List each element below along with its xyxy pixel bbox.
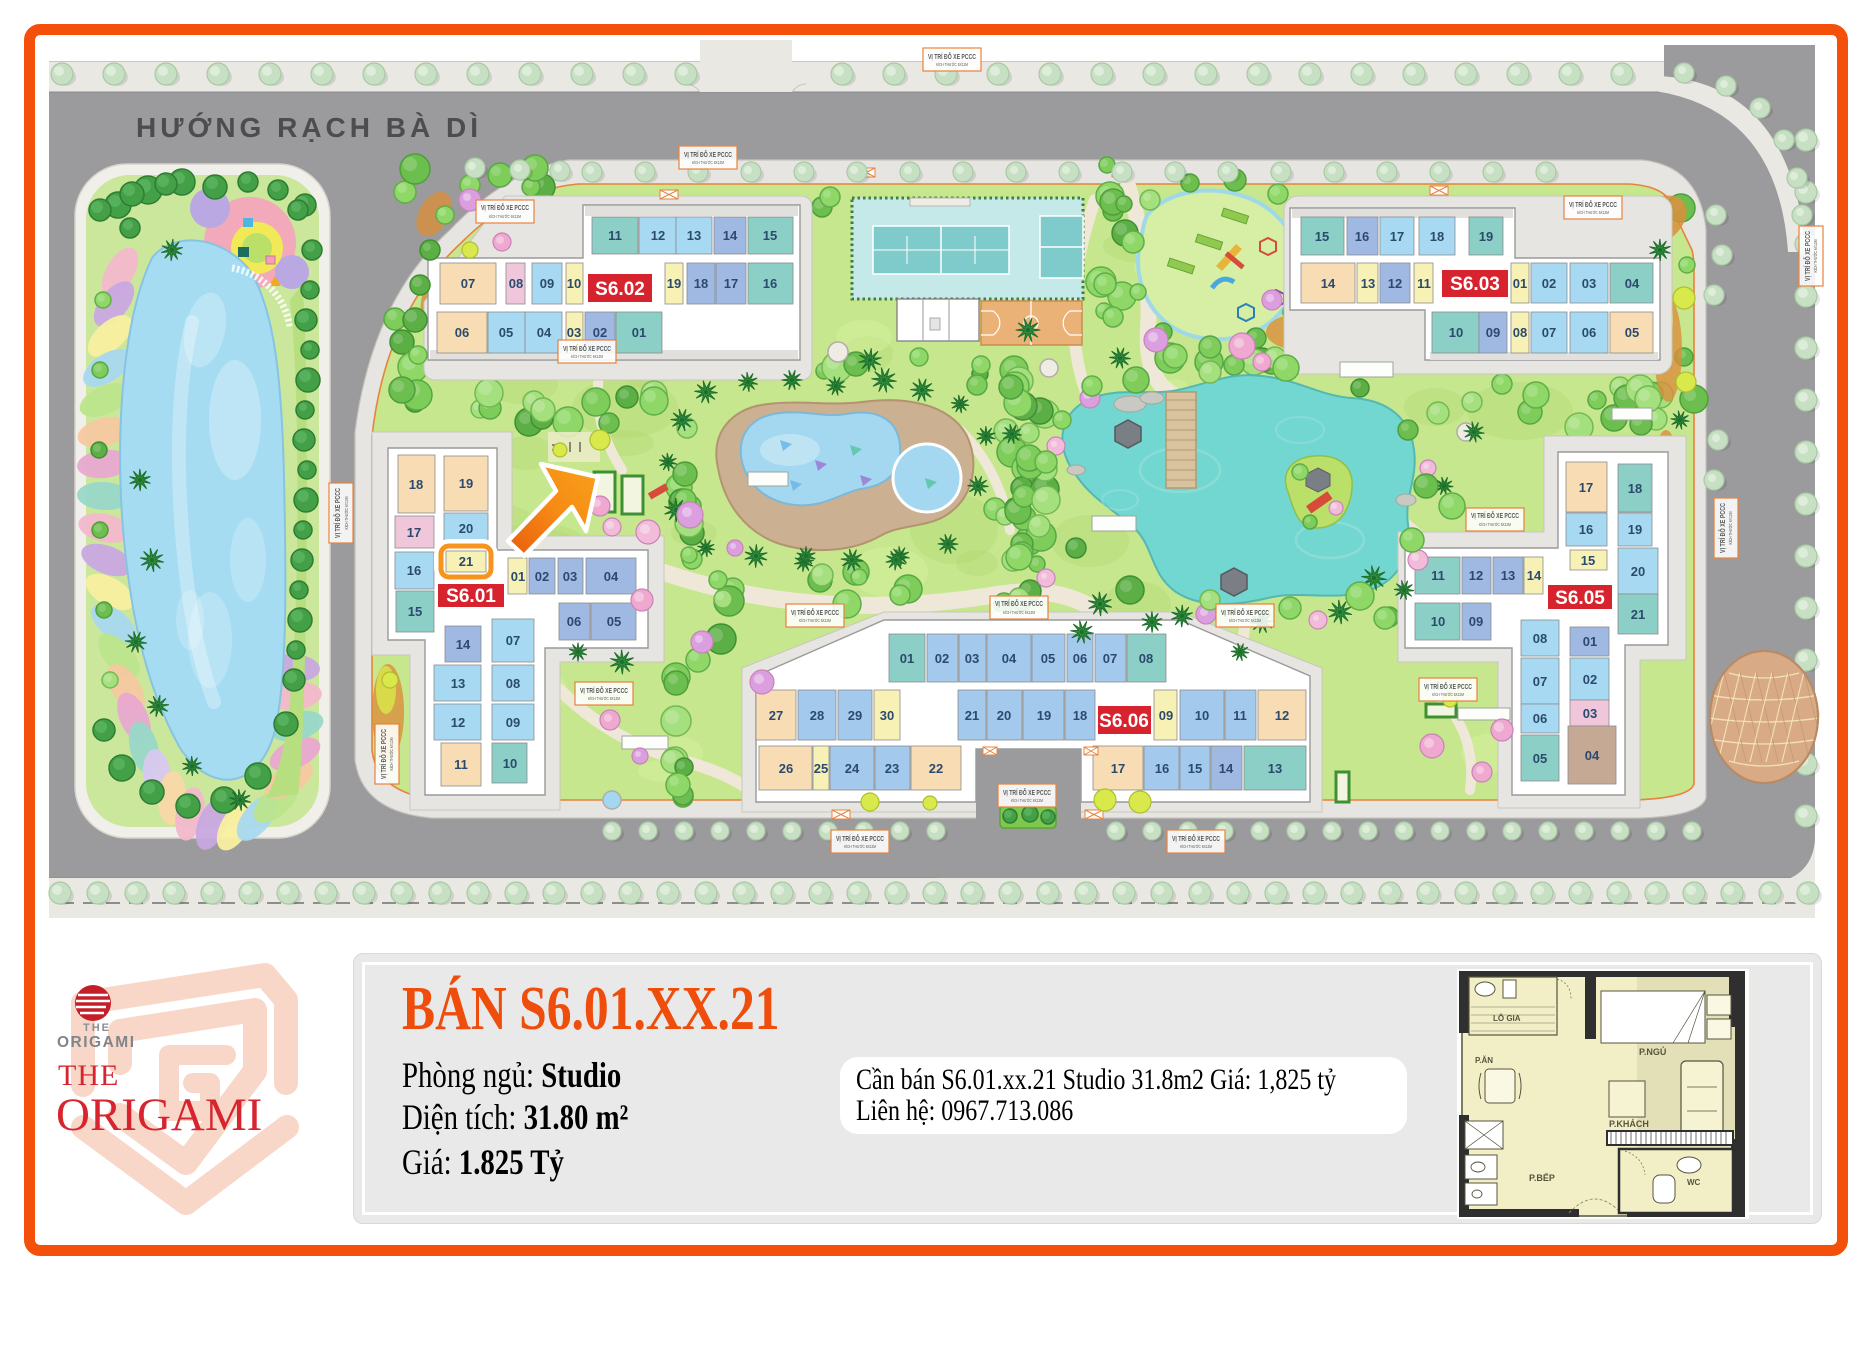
svg-text:14: 14 [1321, 276, 1336, 291]
svg-text:08: 08 [509, 276, 523, 291]
svg-text:VỊ TRÍ ĐỖ XE PCCC: VỊ TRÍ ĐỖ XE PCCC [379, 729, 388, 779]
svg-text:22: 22 [929, 761, 943, 776]
svg-text:VỊ TRÍ ĐỖ XE PCCC: VỊ TRÍ ĐỖ XE PCCC [563, 344, 611, 353]
svg-text:02: 02 [935, 651, 949, 666]
svg-text:KÍCH THƯỚC 6X12M: KÍCH THƯỚC 6X12M [844, 844, 876, 849]
svg-text:02: 02 [1583, 672, 1597, 687]
svg-text:VỊ TRÍ ĐỖ XE PCCC: VỊ TRÍ ĐỖ XE PCCC [928, 52, 976, 61]
svg-text:10: 10 [1431, 614, 1445, 629]
svg-text:01: 01 [511, 569, 525, 584]
svg-text:03: 03 [563, 569, 577, 584]
svg-text:17: 17 [724, 276, 738, 291]
svg-text:KÍCH THƯỚC 6X12M: KÍCH THƯỚC 6X12M [1229, 618, 1261, 623]
svg-text:06: 06 [455, 325, 469, 340]
svg-text:10: 10 [1449, 325, 1463, 340]
svg-text:KÍCH THƯỚC 6X12M: KÍCH THƯỚC 6X12M [344, 496, 349, 529]
svg-text:12: 12 [1388, 276, 1402, 291]
svg-text:16: 16 [763, 276, 777, 291]
svg-text:S6.05: S6.05 [1555, 588, 1605, 609]
svg-text:KÍCH THƯỚC 6X12M: KÍCH THƯỚC 6X12M [1180, 844, 1212, 849]
svg-text:19: 19 [1037, 708, 1051, 723]
svg-text:KÍCH THƯỚC 6X12M: KÍCH THƯỚC 6X12M [1479, 522, 1511, 527]
svg-text:14: 14 [456, 637, 471, 652]
svg-text:18: 18 [1430, 229, 1444, 244]
svg-text:04: 04 [1585, 748, 1600, 763]
svg-text:VỊ TRÍ ĐỖ XE PCCC: VỊ TRÍ ĐỖ XE PCCC [1803, 231, 1812, 281]
svg-text:10: 10 [503, 756, 517, 771]
svg-text:01: 01 [1583, 634, 1597, 649]
svg-text:P.BẾP: P.BẾP [1529, 1173, 1555, 1183]
svg-text:03: 03 [567, 325, 581, 340]
svg-text:17: 17 [1111, 761, 1125, 776]
svg-text:25: 25 [814, 761, 828, 776]
svg-text:03: 03 [965, 651, 979, 666]
svg-text:06: 06 [1533, 711, 1547, 726]
svg-text:KÍCH THƯỚC 6X12M: KÍCH THƯỚC 6X12M [489, 214, 521, 219]
svg-text:KÍCH THƯỚC 6X12M: KÍCH THƯỚC 6X12M [389, 737, 394, 770]
svg-text:09: 09 [540, 276, 554, 291]
svg-text:19: 19 [1479, 229, 1493, 244]
svg-text:14: 14 [723, 228, 738, 243]
svg-text:14: 14 [1219, 761, 1234, 776]
svg-text:VỊ TRÍ ĐỖ XE PCCC: VỊ TRÍ ĐỖ XE PCCC [791, 608, 839, 617]
svg-text:11: 11 [1417, 276, 1431, 291]
svg-text:03: 03 [1583, 706, 1597, 721]
svg-text:14: 14 [1527, 568, 1542, 583]
svg-text:VỊ TRÍ ĐỖ XE PCCC: VỊ TRÍ ĐỖ XE PCCC [995, 599, 1043, 608]
svg-text:15: 15 [408, 604, 422, 619]
svg-text:06: 06 [1073, 651, 1087, 666]
svg-text:11: 11 [1431, 568, 1445, 583]
svg-text:08: 08 [1533, 631, 1547, 646]
svg-text:02: 02 [535, 569, 549, 584]
svg-text:05: 05 [1041, 651, 1055, 666]
svg-text:P.KHÁCH: P.KHÁCH [1609, 1119, 1649, 1129]
svg-text:VỊ TRÍ ĐỖ XE PCCC: VỊ TRÍ ĐỖ XE PCCC [333, 488, 342, 538]
svg-text:27: 27 [769, 708, 783, 723]
svg-text:KÍCH THƯỚC 6X12M: KÍCH THƯỚC 6X12M [1003, 610, 1035, 615]
svg-text:HƯỚNG RẠCH BÀ DÌ: HƯỚNG RẠCH BÀ DÌ [136, 112, 482, 143]
svg-text:VỊ TRÍ ĐỖ XE PCCC: VỊ TRÍ ĐỖ XE PCCC [1172, 834, 1220, 843]
svg-text:06: 06 [567, 614, 581, 629]
svg-text:11: 11 [454, 757, 468, 772]
svg-text:19: 19 [459, 476, 473, 491]
svg-text:13: 13 [687, 228, 701, 243]
svg-text:16: 16 [1155, 761, 1169, 776]
svg-text:P.ĂN: P.ĂN [1475, 1056, 1493, 1065]
svg-text:30: 30 [880, 708, 894, 723]
svg-text:S6.03: S6.03 [1450, 274, 1500, 295]
svg-text:VỊ TRÍ ĐỖ XE PCCC: VỊ TRÍ ĐỖ XE PCCC [1471, 511, 1519, 520]
svg-text:S6.06: S6.06 [1099, 711, 1149, 732]
svg-text:18: 18 [409, 477, 423, 492]
svg-text:07: 07 [461, 276, 475, 291]
svg-text:08: 08 [1513, 325, 1527, 340]
svg-text:20: 20 [997, 708, 1011, 723]
svg-text:KÍCH THƯỚC 6X12M: KÍCH THƯỚC 6X12M [571, 354, 603, 359]
svg-text:07: 07 [506, 633, 520, 648]
svg-text:18: 18 [1628, 481, 1642, 496]
svg-text:09: 09 [1486, 325, 1500, 340]
svg-text:21: 21 [459, 554, 473, 569]
svg-text:LÔ GIA: LÔ GIA [1493, 1014, 1521, 1023]
svg-text:07: 07 [1103, 651, 1117, 666]
svg-text:16: 16 [1355, 229, 1369, 244]
svg-text:15: 15 [1188, 761, 1202, 776]
svg-text:VỊ TRÍ ĐỖ XE PCCC: VỊ TRÍ ĐỖ XE PCCC [1569, 200, 1617, 209]
svg-text:03: 03 [1582, 276, 1596, 291]
svg-text:16: 16 [407, 563, 421, 578]
svg-text:KÍCH THƯỚC 6X12M: KÍCH THƯỚC 6X12M [588, 696, 620, 701]
svg-text:09: 09 [506, 715, 520, 730]
svg-text:23: 23 [885, 761, 899, 776]
svg-text:08: 08 [1139, 651, 1153, 666]
svg-text:21: 21 [965, 708, 979, 723]
svg-text:04: 04 [1002, 651, 1017, 666]
svg-text:01: 01 [900, 651, 914, 666]
svg-text:02: 02 [593, 325, 607, 340]
svg-text:13: 13 [451, 676, 465, 691]
svg-text:VỊ TRÍ ĐỖ XE PCCC: VỊ TRÍ ĐỖ XE PCCC [1003, 788, 1051, 797]
svg-text:06: 06 [1582, 325, 1596, 340]
svg-text:15: 15 [763, 228, 777, 243]
svg-text:S6.02: S6.02 [595, 279, 645, 300]
svg-text:11: 11 [608, 228, 622, 243]
svg-text:20: 20 [1631, 564, 1645, 579]
svg-text:15: 15 [1581, 553, 1595, 568]
svg-text:24: 24 [845, 761, 860, 776]
svg-text:28: 28 [810, 708, 824, 723]
svg-text:09: 09 [1469, 614, 1483, 629]
svg-text:VỊ TRÍ ĐỖ XE PCCC: VỊ TRÍ ĐỖ XE PCCC [481, 203, 529, 212]
svg-text:04: 04 [604, 569, 619, 584]
svg-text:19: 19 [667, 276, 681, 291]
svg-text:KÍCH THƯỚC 6X12M: KÍCH THƯỚC 6X12M [799, 618, 831, 623]
svg-text:10: 10 [567, 276, 581, 291]
svg-text:KÍCH THƯỚC 6X12M: KÍCH THƯỚC 6X12M [1011, 798, 1043, 803]
svg-text:04: 04 [1625, 276, 1640, 291]
svg-text:KÍCH THƯỚC 6X12M: KÍCH THƯỚC 6X12M [1813, 239, 1818, 272]
svg-text:VỊ TRÍ ĐỖ XE PCCC: VỊ TRÍ ĐỖ XE PCCC [1718, 503, 1727, 553]
svg-text:16: 16 [1579, 522, 1593, 537]
svg-text:12: 12 [451, 715, 465, 730]
svg-text:VỊ TRÍ ĐỖ XE PCCC: VỊ TRÍ ĐỖ XE PCCC [1424, 682, 1472, 691]
svg-text:12: 12 [1275, 708, 1289, 723]
svg-text:WC: WC [1687, 1178, 1701, 1187]
svg-text:18: 18 [1073, 708, 1087, 723]
svg-text:VỊ TRÍ ĐỖ XE PCCC: VỊ TRÍ ĐỖ XE PCCC [1221, 608, 1269, 617]
svg-text:17: 17 [1390, 229, 1404, 244]
svg-text:15: 15 [1315, 229, 1329, 244]
svg-text:17: 17 [407, 525, 421, 540]
svg-text:10: 10 [1195, 708, 1209, 723]
svg-text:21: 21 [1631, 607, 1645, 622]
svg-text:11: 11 [1233, 708, 1247, 723]
svg-text:VỊ TRÍ ĐỖ XE PCCC: VỊ TRÍ ĐỖ XE PCCC [580, 686, 628, 695]
svg-text:VỊ TRÍ ĐỖ XE PCCC: VỊ TRÍ ĐỖ XE PCCC [836, 834, 884, 843]
svg-text:KÍCH THƯỚC 6X12M: KÍCH THƯỚC 6X12M [1432, 692, 1464, 697]
svg-text:18: 18 [694, 276, 708, 291]
svg-text:26: 26 [779, 761, 793, 776]
svg-text:P.NGỦ: P.NGỦ [1639, 1046, 1666, 1057]
svg-text:07: 07 [1542, 325, 1556, 340]
svg-text:07: 07 [1533, 674, 1547, 689]
svg-text:KÍCH THƯỚC 6X12M: KÍCH THƯỚC 6X12M [1728, 511, 1733, 544]
svg-text:01: 01 [632, 325, 646, 340]
svg-text:12: 12 [651, 228, 665, 243]
svg-text:05: 05 [1625, 325, 1639, 340]
svg-text:13: 13 [1268, 761, 1282, 776]
svg-text:13: 13 [1361, 276, 1375, 291]
svg-text:29: 29 [848, 708, 862, 723]
svg-text:19: 19 [1628, 522, 1642, 537]
svg-text:09: 09 [1159, 708, 1173, 723]
svg-text:02: 02 [1542, 276, 1556, 291]
svg-text:20: 20 [459, 521, 473, 536]
svg-text:17: 17 [1579, 480, 1593, 495]
svg-text:08: 08 [506, 676, 520, 691]
svg-text:05: 05 [499, 325, 513, 340]
svg-text:05: 05 [607, 614, 621, 629]
svg-text:04: 04 [537, 325, 552, 340]
svg-text:KÍCH THƯỚC 6X12M: KÍCH THƯỚC 6X12M [936, 62, 968, 67]
svg-text:13: 13 [1501, 568, 1515, 583]
svg-text:KÍCH THƯỚC 6X12M: KÍCH THƯỚC 6X12M [1577, 210, 1609, 215]
svg-text:KÍCH THƯỚC 6X12M: KÍCH THƯỚC 6X12M [692, 160, 724, 165]
svg-text:VỊ TRÍ ĐỖ XE PCCC: VỊ TRÍ ĐỖ XE PCCC [684, 150, 732, 159]
svg-text:01: 01 [1513, 276, 1527, 291]
svg-text:S6.01: S6.01 [446, 586, 496, 607]
svg-text:05: 05 [1533, 751, 1547, 766]
svg-text:12: 12 [1469, 568, 1483, 583]
